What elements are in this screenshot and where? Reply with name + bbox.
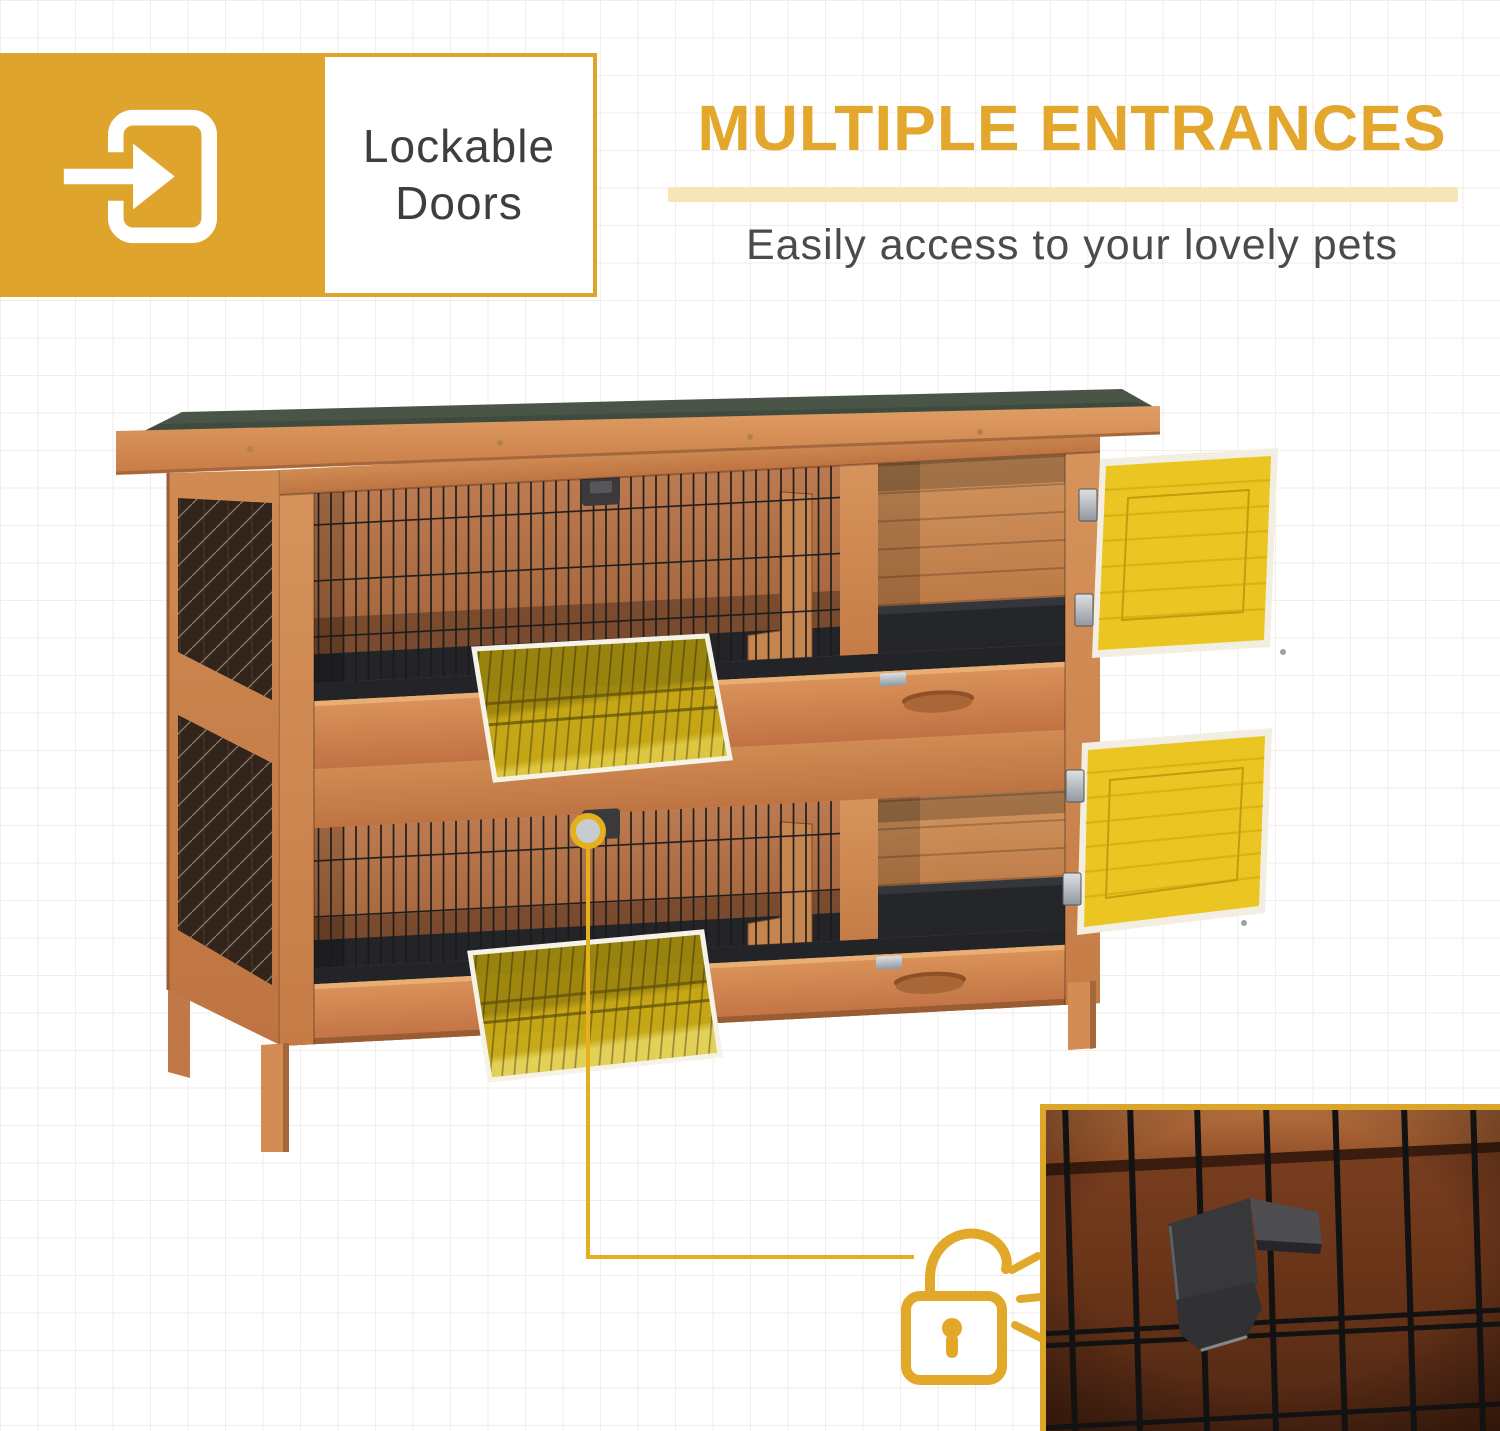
lower-door-hinge-bottom bbox=[1063, 873, 1081, 905]
tray-latch bbox=[880, 672, 906, 686]
upper-door-hinge-bottom bbox=[1075, 594, 1093, 626]
upper-tray-highlight bbox=[474, 636, 730, 780]
lower-open-door bbox=[1063, 728, 1272, 935]
circle-ring-marker-icon bbox=[573, 816, 603, 846]
lower-open-compartment bbox=[878, 789, 1065, 939]
upper-open-door bbox=[1075, 448, 1286, 658]
padlock-open-icon bbox=[906, 1233, 1051, 1380]
product-feature-image: Lockable Doors MULTIPLE ENTRANCES Easily… bbox=[0, 0, 1500, 1431]
hutch-left-side-panel bbox=[168, 470, 280, 1078]
upper-open-compartment bbox=[878, 454, 1065, 654]
upper-door-hinge-top bbox=[1079, 489, 1097, 521]
lock-closeup-inset bbox=[1040, 1104, 1500, 1431]
lower-door-hinge-top bbox=[1066, 770, 1084, 802]
hutch-illustration bbox=[0, 0, 1500, 1431]
rear-left-leg bbox=[168, 990, 190, 1078]
lower-tray-highlight bbox=[470, 932, 720, 1080]
bottom-tray-latch bbox=[876, 955, 902, 969]
